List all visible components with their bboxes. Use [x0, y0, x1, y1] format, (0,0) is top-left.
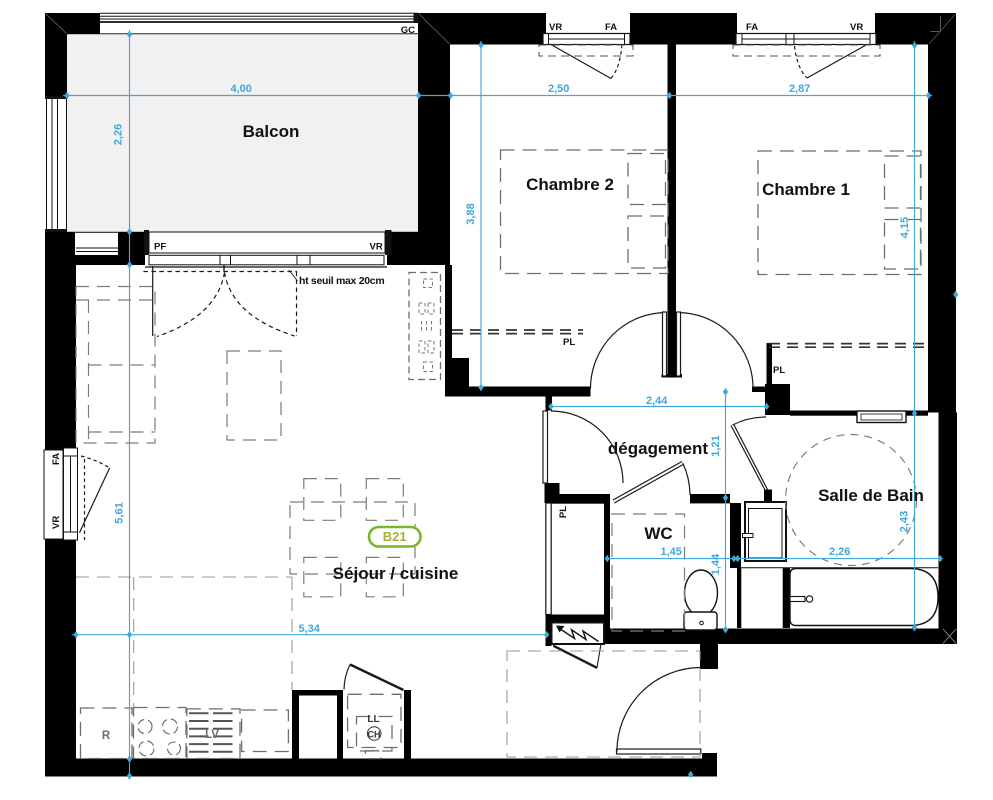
svg-text:VR: VR — [370, 242, 383, 253]
svg-text:4,00: 4,00 — [231, 83, 252, 95]
svg-text:GC: GC — [401, 25, 415, 36]
svg-text:PL: PL — [558, 506, 569, 518]
svg-text:Balcon: Balcon — [243, 122, 300, 141]
svg-text:2,26: 2,26 — [829, 546, 850, 558]
svg-text:ht seuil max 20cm: ht seuil max 20cm — [299, 275, 384, 287]
svg-text:PL: PL — [773, 365, 785, 376]
svg-text:dégagement: dégagement — [608, 439, 708, 458]
svg-text:WC: WC — [644, 524, 672, 543]
svg-text:2,87: 2,87 — [789, 83, 810, 95]
svg-text:1,44: 1,44 — [710, 553, 722, 575]
svg-text:LV: LV — [205, 729, 219, 741]
svg-text:4,15: 4,15 — [899, 217, 911, 238]
svg-text:Séjour / cuisine: Séjour / cuisine — [333, 564, 459, 583]
svg-text:VR: VR — [51, 516, 62, 529]
svg-text:3,88: 3,88 — [465, 203, 477, 224]
svg-text:VR: VR — [549, 22, 562, 33]
svg-text:1,21: 1,21 — [710, 435, 722, 456]
svg-text:LL: LL — [367, 714, 379, 725]
svg-text:B21: B21 — [383, 529, 407, 544]
svg-text:PF: PF — [154, 242, 166, 253]
svg-text:PL: PL — [563, 337, 575, 348]
svg-text:Salle de Bain: Salle de Bain — [818, 486, 924, 505]
svg-text:2,44: 2,44 — [646, 395, 668, 407]
svg-text:VR: VR — [850, 22, 863, 33]
svg-text:2,43: 2,43 — [899, 511, 911, 532]
svg-text:FA: FA — [605, 22, 617, 33]
svg-text:2,26: 2,26 — [113, 124, 125, 145]
svg-text:FA: FA — [51, 453, 62, 465]
svg-text:Chambre 1: Chambre 1 — [762, 180, 850, 199]
svg-text:FA: FA — [746, 22, 758, 33]
svg-text:2,50: 2,50 — [548, 83, 569, 95]
svg-text:Chambre 2: Chambre 2 — [526, 175, 614, 194]
svg-text:1,45: 1,45 — [661, 546, 682, 558]
svg-text:5,61: 5,61 — [114, 502, 126, 523]
svg-text:5,34: 5,34 — [299, 623, 321, 635]
svg-text:R: R — [102, 730, 111, 742]
